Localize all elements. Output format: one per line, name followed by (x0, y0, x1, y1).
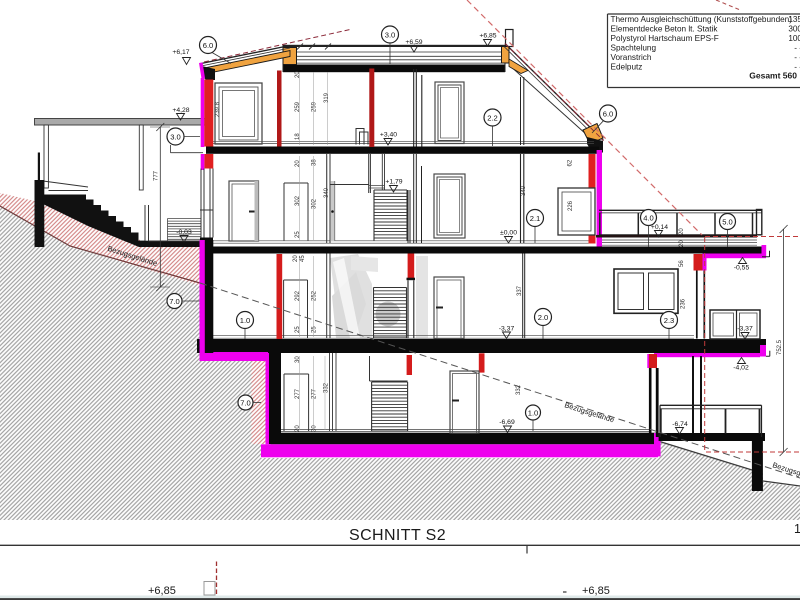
svg-text:+1,79: +1,79 (385, 179, 402, 186)
svg-text:Polystyrol Hartschaum EPS-F: Polystyrol Hartschaum EPS-F (611, 34, 719, 43)
svg-text:25: 25 (312, 326, 318, 333)
svg-text:332: 332 (516, 384, 522, 395)
svg-text:340: 340 (324, 187, 330, 198)
svg-text:777: 777 (154, 170, 160, 181)
svg-text:Gesamt 560: Gesamt 560 (749, 71, 797, 81)
svg-text:-3,37: -3,37 (737, 326, 753, 333)
svg-text:252: 252 (312, 290, 318, 301)
svg-text:+6,85: +6,85 (479, 33, 496, 40)
svg-text:38: 38 (312, 159, 318, 166)
svg-text:292: 292 (295, 290, 301, 301)
svg-text:236: 236 (681, 298, 687, 309)
svg-text:-3,37: -3,37 (499, 326, 515, 333)
svg-text:62: 62 (568, 159, 574, 166)
svg-text:300: 300 (788, 25, 800, 34)
svg-text:7.0: 7.0 (169, 297, 180, 306)
svg-text:20: 20 (679, 228, 685, 235)
svg-text:-6,74: -6,74 (672, 421, 688, 428)
svg-text:Spachtelung: Spachtelung (611, 44, 657, 53)
svg-text:Elementdecke Beton lt. Statik: Elementdecke Beton lt. Statik (611, 25, 719, 34)
svg-text:45: 45 (300, 255, 306, 262)
svg-text:2.0: 2.0 (538, 313, 549, 322)
svg-text:Edelputz: Edelputz (611, 63, 643, 72)
svg-text:239.8: 239.8 (215, 101, 221, 117)
svg-text:+6,85: +6,85 (582, 585, 610, 597)
svg-text:2.2: 2.2 (487, 113, 498, 122)
svg-text:20: 20 (295, 71, 301, 78)
svg-text:- -: - - (794, 53, 800, 62)
svg-text:SCHNITT S2: SCHNITT S2 (349, 527, 446, 544)
svg-text:30: 30 (312, 425, 318, 432)
svg-text:+4,28: +4,28 (172, 107, 189, 114)
svg-text:752.5: 752.5 (777, 339, 783, 355)
svg-text:±0,00: ±0,00 (500, 230, 517, 237)
svg-text:+3,40: +3,40 (380, 132, 397, 139)
svg-text:20: 20 (679, 240, 685, 247)
svg-text:+6,85: +6,85 (148, 585, 176, 597)
svg-text:277: 277 (312, 388, 318, 399)
svg-text:25: 25 (295, 231, 301, 238)
svg-text:18: 18 (295, 133, 301, 140)
svg-text:-6,69: -6,69 (499, 419, 515, 426)
svg-text:319: 319 (324, 92, 330, 103)
svg-text:25: 25 (295, 326, 301, 333)
svg-text:5.0: 5.0 (722, 217, 733, 226)
svg-text:Voranstrich: Voranstrich (611, 53, 652, 62)
svg-text:226: 226 (568, 200, 574, 211)
svg-text:+0,14: +0,14 (651, 224, 668, 231)
svg-text:-0,55: -0,55 (734, 265, 750, 272)
svg-text:3.0: 3.0 (385, 30, 396, 39)
svg-text:6.0: 6.0 (603, 109, 614, 118)
svg-text:3.0: 3.0 (170, 132, 181, 141)
svg-text:6.0: 6.0 (203, 41, 214, 50)
svg-text:135: 135 (788, 15, 800, 24)
svg-text:56: 56 (679, 260, 685, 267)
svg-text:100: 100 (788, 34, 800, 43)
svg-text:+6,17: +6,17 (172, 49, 189, 56)
svg-text:302: 302 (295, 195, 301, 206)
svg-text:- -: - - (794, 44, 800, 53)
svg-text:20: 20 (293, 255, 299, 262)
svg-text:+6,59: +6,59 (405, 39, 422, 46)
svg-text:-0,03: -0,03 (176, 229, 192, 236)
svg-text:2.1: 2.1 (530, 214, 541, 223)
svg-text:20: 20 (295, 425, 301, 432)
svg-text:302: 302 (312, 198, 318, 209)
svg-text:1: 1 (794, 522, 800, 536)
svg-text:259: 259 (295, 101, 301, 112)
svg-text:332: 332 (324, 382, 330, 393)
svg-text:7.0: 7.0 (240, 398, 251, 407)
svg-text:-4,02: -4,02 (733, 365, 749, 372)
svg-text:2.3: 2.3 (664, 316, 675, 325)
svg-text:337: 337 (517, 285, 523, 296)
svg-text:1.0: 1.0 (240, 316, 251, 325)
svg-text:259: 259 (312, 101, 318, 112)
svg-text:20: 20 (295, 160, 301, 167)
svg-text:277: 277 (295, 388, 301, 399)
svg-text:1.0: 1.0 (528, 408, 539, 417)
svg-text:340: 340 (521, 185, 527, 196)
svg-text:4.0: 4.0 (643, 213, 654, 222)
svg-text:Thermo Ausgleichschüttung (Kun: Thermo Ausgleichschüttung (Kunststoffgeb… (611, 15, 793, 24)
svg-text:30: 30 (295, 356, 301, 363)
